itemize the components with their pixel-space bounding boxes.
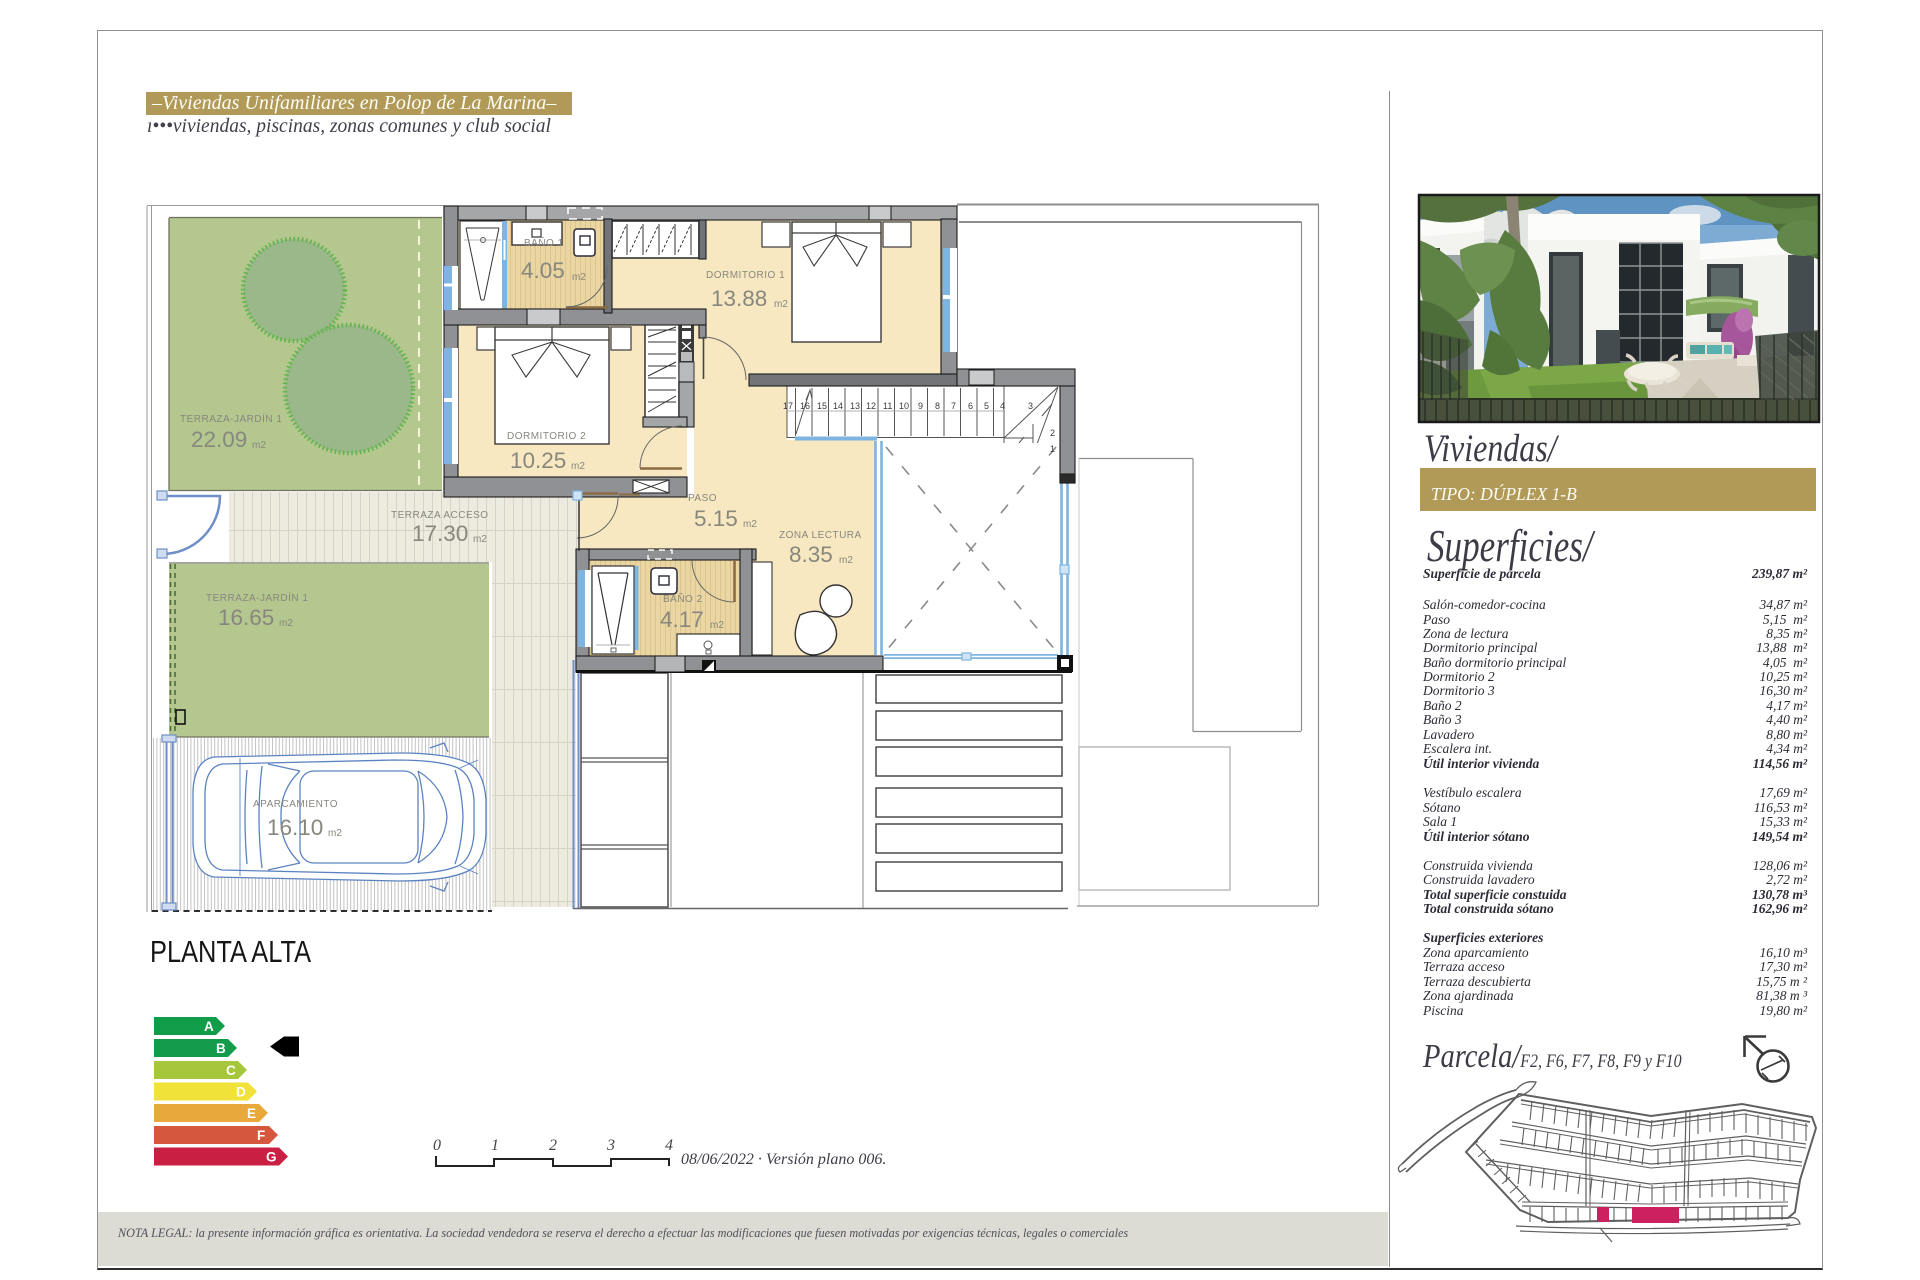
svg-text:8: 8 — [935, 401, 940, 411]
svg-text:m2: m2 — [839, 555, 853, 566]
svg-text:TERRAZA ACCESO: TERRAZA ACCESO — [391, 510, 489, 521]
svg-text:15: 15 — [817, 401, 827, 411]
svg-text:D: D — [236, 1085, 246, 1100]
svg-text:BAÑO 1: BAÑO 1 — [524, 236, 564, 249]
svg-text:1: 1 — [491, 1137, 499, 1154]
svg-text:1: 1 — [1050, 444, 1055, 454]
svg-text:m2: m2 — [571, 461, 585, 472]
svg-text:3: 3 — [606, 1137, 615, 1154]
svg-text:6: 6 — [968, 401, 973, 411]
svg-text:4.17: 4.17 — [660, 607, 704, 632]
svg-text:4: 4 — [665, 1137, 673, 1154]
svg-text:22.09: 22.09 — [191, 427, 247, 452]
svg-text:10: 10 — [899, 401, 909, 411]
svg-text:12: 12 — [866, 401, 876, 411]
svg-text:m2: m2 — [473, 534, 487, 545]
svg-text:0: 0 — [433, 1137, 441, 1154]
svg-text:A: A — [204, 1019, 214, 1034]
svg-text:m2: m2 — [279, 618, 293, 629]
svg-text:m2: m2 — [328, 828, 342, 839]
svg-text:BAÑO 2: BAÑO 2 — [663, 592, 703, 605]
svg-text:7: 7 — [951, 401, 956, 411]
svg-text:9: 9 — [918, 401, 923, 411]
svg-text:C: C — [226, 1063, 236, 1078]
svg-text:DORMITORIO 2: DORMITORIO 2 — [507, 431, 586, 442]
svg-text:E: E — [247, 1106, 256, 1121]
svg-text:PASO: PASO — [688, 493, 717, 504]
svg-text:F: F — [257, 1128, 265, 1143]
svg-text:3: 3 — [1028, 401, 1033, 411]
svg-text:G: G — [266, 1150, 277, 1165]
svg-text:B: B — [216, 1041, 226, 1056]
svg-text:m2: m2 — [252, 440, 266, 451]
svg-text:17: 17 — [783, 401, 793, 411]
svg-text:14: 14 — [833, 401, 843, 411]
svg-text:APARCAMIENTO: APARCAMIENTO — [253, 799, 338, 810]
svg-text:m2: m2 — [710, 620, 724, 631]
svg-text:2: 2 — [1050, 428, 1055, 438]
svg-text:16.10: 16.10 — [267, 815, 323, 840]
svg-text:10.25: 10.25 — [510, 448, 566, 473]
svg-text:DORMITORIO 1: DORMITORIO 1 — [706, 270, 785, 281]
svg-text:ZONA LECTURA: ZONA LECTURA — [779, 530, 862, 541]
svg-text:5.15: 5.15 — [694, 506, 738, 531]
svg-text:4: 4 — [1000, 401, 1005, 411]
svg-text:TERRAZA-JARDÍN 1: TERRAZA-JARDÍN 1 — [206, 591, 308, 604]
svg-text:16.65: 16.65 — [218, 605, 274, 630]
svg-text:13.88: 13.88 — [711, 286, 767, 311]
svg-text:5: 5 — [984, 401, 989, 411]
svg-text:m2: m2 — [743, 519, 757, 530]
svg-text:8.35: 8.35 — [789, 542, 833, 567]
svg-text:11: 11 — [883, 401, 892, 411]
svg-text:TERRAZA-JARDÍN 1: TERRAZA-JARDÍN 1 — [180, 412, 282, 425]
svg-text:m2: m2 — [774, 299, 788, 310]
svg-text:2: 2 — [549, 1137, 557, 1154]
svg-text:m2: m2 — [572, 272, 586, 283]
svg-text:13: 13 — [850, 401, 860, 411]
svg-text:4.05: 4.05 — [521, 258, 565, 283]
svg-text:17.30: 17.30 — [412, 521, 468, 546]
svg-text:16: 16 — [800, 401, 810, 411]
